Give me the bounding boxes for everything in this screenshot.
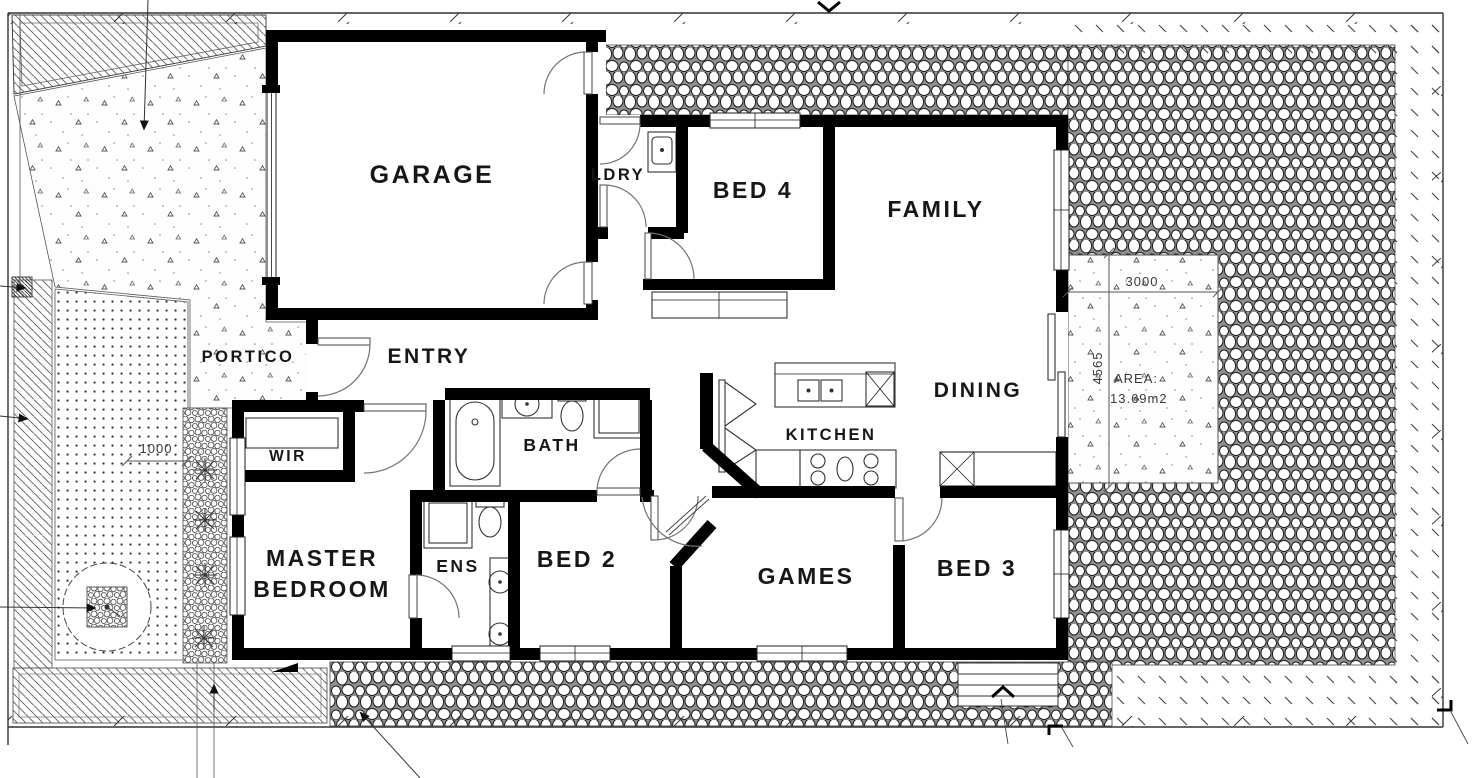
boundary-ticks-top [8, 13, 1443, 24]
bed2-window [540, 646, 610, 661]
room-label-bed4: BED 4 [713, 177, 793, 203]
bed3-window [1054, 530, 1069, 618]
room-label-master-line2: BEDROOM [253, 576, 391, 602]
setback-text: 1000 [140, 441, 173, 456]
rear-steps [958, 663, 1058, 706]
boundary-ticks-right [1432, 13, 1443, 727]
master-window-lower [230, 537, 245, 615]
top-chevron-marker [818, 2, 840, 11]
room-label-garage: GARAGE [370, 161, 495, 189]
garden-strip [183, 408, 227, 663]
room-label-bed3: BED 3 [937, 555, 1017, 581]
room-label-portico: PORTICO [202, 348, 295, 366]
ens-window [452, 646, 510, 661]
room-label-family: FAMILY [887, 196, 984, 222]
games-window [757, 646, 847, 661]
cooktop [800, 450, 896, 488]
corner-marker-steps [1049, 726, 1073, 747]
room-label-entry: ENTRY [388, 345, 471, 368]
patio-area-value: 13.69m2 [1110, 391, 1168, 406]
room-label-dining: DINING [934, 379, 1023, 402]
room-label-kitchen: KITCHEN [786, 426, 877, 444]
kitchen-island [775, 363, 895, 407]
room-label-wir: WIR [269, 448, 307, 465]
patio-area-label: AREA: [1114, 371, 1158, 386]
room-label-master-line1: MASTER [266, 545, 378, 571]
ensuite-vanity [489, 558, 511, 654]
tree [63, 563, 151, 651]
room-label-bath: BATH [523, 435, 580, 455]
ensuite-shower [424, 498, 472, 548]
walkway-triangle-marker [272, 663, 298, 672]
gravel-top-band [598, 45, 1068, 115]
side-path-strip [14, 280, 52, 668]
room-label-games: GAMES [758, 563, 855, 589]
bathtub [450, 396, 500, 486]
floor-plan-canvas: 3000 4565 AREA: 13.69m2 1000 [0, 0, 1472, 778]
bottom-walkway [13, 668, 327, 723]
patio-width-text: 3000 [1126, 274, 1159, 289]
master-window-upper [230, 438, 245, 515]
family-window [1054, 150, 1069, 270]
room-label-ens: ENS [436, 556, 479, 576]
bed4-window [710, 113, 800, 128]
room-label-bed2: BED 2 [537, 546, 617, 572]
patio-depth-text: 4565 [1090, 352, 1105, 385]
room-label-ldry: LDRY [591, 166, 645, 184]
boundary-ticks-bottom [8, 716, 1443, 727]
laundry-sink [648, 132, 676, 172]
